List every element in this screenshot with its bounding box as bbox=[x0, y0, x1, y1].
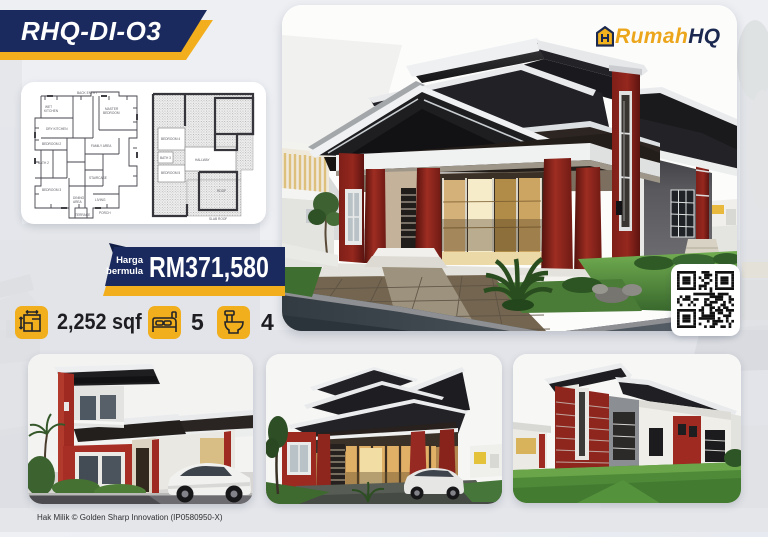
svg-text:BEDROOM 4: BEDROOM 4 bbox=[161, 137, 180, 141]
svg-text:BEDROOM: BEDROOM bbox=[103, 111, 120, 115]
svg-text:DRY KITCHEN: DRY KITCHEN bbox=[46, 127, 68, 131]
svg-text:HALLWAY: HALLWAY bbox=[195, 158, 211, 162]
svg-text:FAMILY AREA: FAMILY AREA bbox=[91, 144, 112, 148]
svg-text:KITCHEN: KITCHEN bbox=[44, 109, 59, 113]
svg-text:STAIRCASE: STAIRCASE bbox=[89, 176, 107, 180]
svg-text:LIVING: LIVING bbox=[95, 198, 106, 202]
svg-text:BACK ENTRY: BACK ENTRY bbox=[77, 91, 98, 95]
svg-text:TERRACE: TERRACE bbox=[75, 213, 90, 217]
svg-text:BATH 2: BATH 2 bbox=[38, 161, 49, 165]
svg-text:SLAB ROOF: SLAB ROOF bbox=[209, 217, 227, 221]
svg-text:BEDROOM 5: BEDROOM 5 bbox=[161, 171, 180, 175]
svg-text:BEDROOM 3: BEDROOM 3 bbox=[42, 188, 61, 192]
svg-text:AREA: AREA bbox=[73, 200, 83, 204]
svg-text:ROOF: ROOF bbox=[217, 189, 226, 193]
svg-text:BEDROOM 2: BEDROOM 2 bbox=[42, 142, 61, 146]
svg-text:BATH 3: BATH 3 bbox=[160, 156, 171, 160]
svg-text:PORCH: PORCH bbox=[99, 211, 111, 215]
